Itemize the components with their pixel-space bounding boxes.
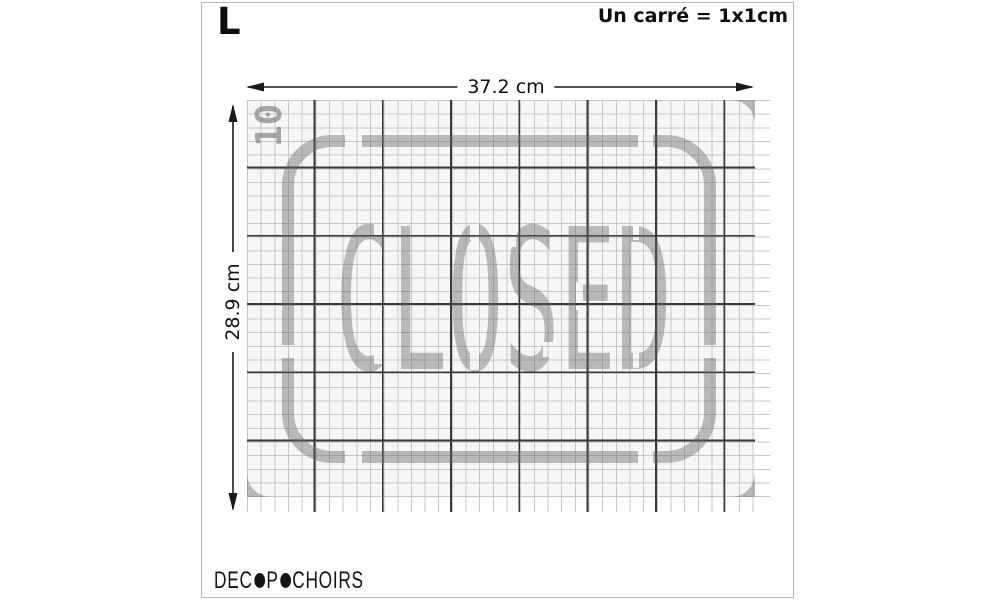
logo-text-choirs: CHOIRS [292,567,364,594]
stencil-word-closed: CLOSED [335,188,672,416]
corner-mark-bottom-right [731,473,755,497]
corner-mark-top-right [731,100,755,124]
width-dimension-label: 37.2 cm [457,76,554,98]
stencil-height-marker: 10 [249,104,290,147]
logo-text-dec: DEC [214,567,253,594]
brand-logo: DECPCHOIRS [214,567,364,595]
scale-note-label: Un carré = 1x1cm [598,5,788,27]
stencil-artwork: CLOSED 10 [247,100,755,497]
logo-o-dot-icon [280,573,291,588]
size-letter-label: L [217,2,241,43]
height-dimension-label: 28.9 cm [222,253,244,350]
stage: L Un carré = 1x1cm [0,0,1000,600]
logo-text-p: P [266,567,278,594]
grid-fringe-bottom [247,497,755,512]
logo-o-dot-icon [254,573,265,588]
grid-fringe-right [755,100,770,497]
corner-mark-bottom-left [247,473,271,497]
